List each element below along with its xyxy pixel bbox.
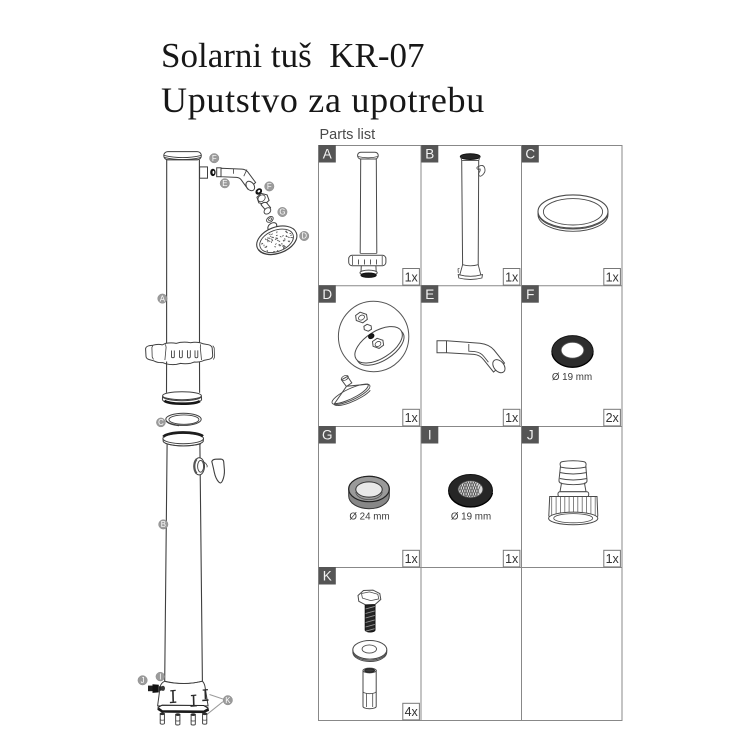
- svg-text:D: D: [301, 232, 307, 241]
- svg-text:4x: 4x: [405, 705, 419, 719]
- svg-text:I: I: [428, 428, 432, 443]
- svg-text:1x: 1x: [606, 270, 620, 284]
- svg-text:J: J: [527, 428, 534, 443]
- svg-text:C: C: [525, 147, 535, 162]
- svg-text:E: E: [425, 287, 434, 302]
- svg-text:A: A: [160, 294, 166, 303]
- svg-text:B: B: [161, 520, 166, 529]
- svg-text:2x: 2x: [606, 411, 620, 425]
- svg-text:J: J: [141, 676, 145, 685]
- svg-text:I: I: [159, 672, 161, 681]
- svg-text:1x: 1x: [505, 552, 519, 566]
- svg-text:1x: 1x: [505, 270, 519, 284]
- svg-text:1x: 1x: [405, 411, 419, 425]
- svg-text:1x: 1x: [405, 552, 419, 566]
- svg-text:Ø 19 mm: Ø 19 mm: [451, 512, 491, 523]
- svg-text:G: G: [279, 208, 285, 217]
- svg-text:C: C: [158, 418, 164, 427]
- svg-text:K: K: [323, 569, 332, 584]
- svg-text:Ø 24 mm: Ø 24 mm: [349, 512, 389, 523]
- svg-text:E: E: [222, 179, 227, 188]
- svg-text:D: D: [322, 287, 332, 302]
- svg-text:F: F: [212, 154, 217, 163]
- svg-text:F: F: [526, 287, 534, 302]
- svg-text:Ø 19 mm: Ø 19 mm: [552, 372, 592, 383]
- svg-text:F: F: [267, 182, 272, 191]
- svg-text:A: A: [323, 147, 332, 162]
- svg-text:1x: 1x: [606, 552, 620, 566]
- svg-text:K: K: [225, 696, 231, 705]
- svg-text:G: G: [322, 428, 333, 443]
- svg-text:Parts list: Parts list: [320, 127, 376, 143]
- svg-text:1x: 1x: [505, 411, 519, 425]
- svg-text:B: B: [425, 147, 434, 162]
- svg-text:1x: 1x: [405, 270, 419, 284]
